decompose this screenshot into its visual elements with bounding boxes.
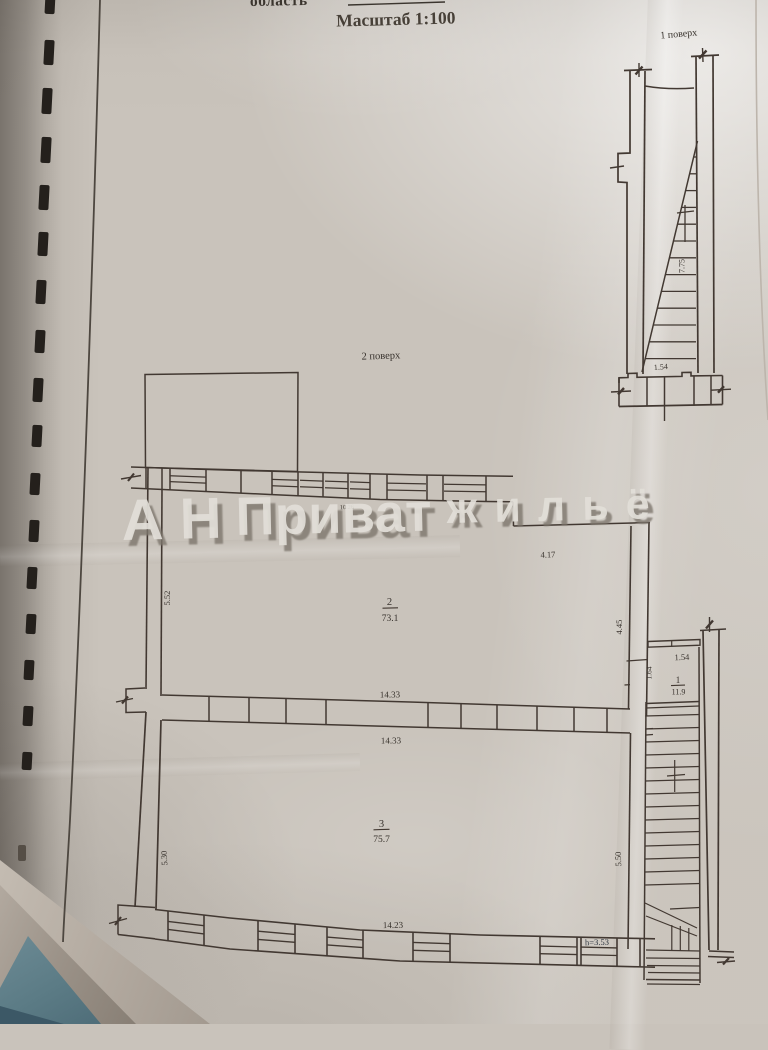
svg-text:жильё: жильё	[445, 480, 650, 533]
svg-text:АН: АН	[121, 486, 222, 553]
svg-text:Приват: Приват	[235, 483, 432, 547]
